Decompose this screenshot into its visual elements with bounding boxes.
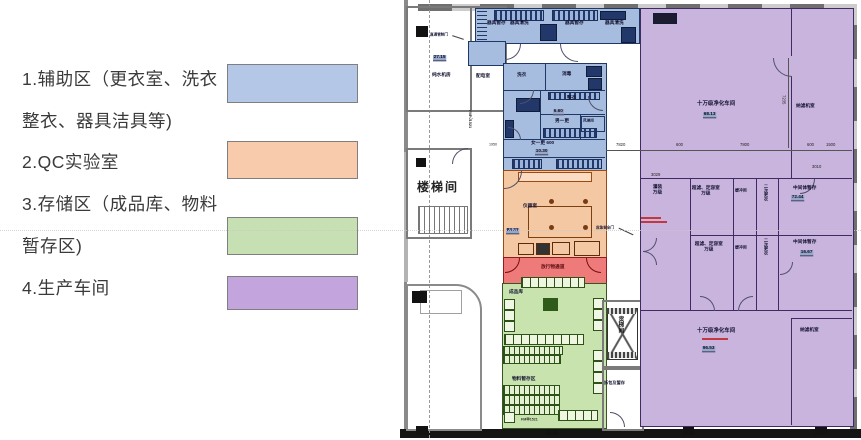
wall <box>791 76 792 178</box>
room-label-laundry: 洗衣 <box>517 73 526 79</box>
lab-table <box>528 206 592 238</box>
room-label-air-shower: 风淋间 <box>583 119 594 123</box>
room-label-elevator: 货梯间 <box>616 316 623 333</box>
micro-annotation <box>641 221 667 223</box>
wall <box>545 63 546 90</box>
dim-3029: 3029 <box>651 173 660 177</box>
area-number: 16.67 <box>800 250 813 256</box>
legend-item-1-line2: 整衣、器具洁具等) <box>22 108 172 133</box>
room-label-finished-goods: 成品库 <box>509 290 523 296</box>
legend-item-4-line1: 4.生产车间 <box>22 275 110 300</box>
dim-7820: 7820 <box>616 143 625 147</box>
room-label-second-change-1: 二次更衣 <box>762 184 767 201</box>
wall <box>791 318 792 425</box>
dim-600: 600 <box>807 143 814 147</box>
room-label-tool-wash: 器具清洗 <box>605 21 624 27</box>
room-label-disinfect: 消毒 <box>562 72 571 78</box>
area-number: 10.30 <box>535 149 548 155</box>
legend-item-3-line2: 暂存区) <box>22 233 82 258</box>
room-label-women-change: 女一更 600 <box>531 141 554 147</box>
wall <box>503 157 605 158</box>
floorplan-page: 1.辅助区（更衣室、洗衣 整衣、器具洁具等) 2.QC实验室 3.存储区（成品库… <box>0 0 861 440</box>
door-label-fm1521: FM甲1521 <box>521 418 538 422</box>
pallet <box>504 321 515 332</box>
dim-1950: 1950 <box>489 143 497 147</box>
equipment-bench <box>552 10 598 21</box>
room-label-cleanroom-bottom: 十万级净化车间 <box>697 328 735 335</box>
room-label-power: 配电室 <box>476 74 490 80</box>
leader-line <box>619 228 634 236</box>
shelf <box>503 395 560 405</box>
shelf <box>503 385 560 395</box>
zone-aux-wing <box>468 41 506 66</box>
column <box>416 158 426 167</box>
pallet <box>504 299 515 310</box>
equipment <box>600 11 626 20</box>
dim-7800: 7800 <box>740 143 749 147</box>
legend-swatch-aux <box>227 64 358 103</box>
wall <box>733 178 734 310</box>
dim-600: 600 <box>676 143 683 147</box>
pallet-row <box>558 410 598 421</box>
corridor-label-release: 放行物通道 <box>541 265 564 271</box>
room-label-intermediate-1: 中间体暂存 <box>793 186 816 192</box>
zone-production <box>640 8 854 427</box>
area-number: 68.13 <box>703 112 716 118</box>
lab-equipment <box>552 242 570 255</box>
room-label-tool-storage: 器具暂存 <box>487 21 506 27</box>
dim-1500: 1500 <box>826 143 835 147</box>
shelf <box>503 355 561 364</box>
room-label-unpack: 拆包及暂存 <box>604 381 625 386</box>
column <box>416 26 428 37</box>
room-label-buffer-2: 缓冲间 <box>735 246 747 251</box>
wall <box>778 178 779 310</box>
room-label-stairwell: 楼梯间 <box>417 178 459 195</box>
room-label-men-change: 男一更 <box>555 119 569 125</box>
room-label-filling: 灌装万级 <box>652 185 663 196</box>
lab-bench <box>518 172 592 182</box>
legend-item-1-line1: 1.辅助区（更衣室、洗衣 <box>22 66 218 91</box>
legend-swatch-production <box>227 276 358 310</box>
wall <box>503 90 605 91</box>
wall <box>640 178 852 179</box>
room-label-tool-wash: 器具清洗 <box>510 21 529 27</box>
area-number: 83.22 <box>506 228 519 234</box>
equipment <box>588 78 602 90</box>
room-label-cleanroom-top: 十万级净化车间 <box>697 101 735 108</box>
equipment-bench <box>494 10 544 21</box>
area-number: 72.44 <box>791 195 804 201</box>
shelf <box>503 346 563 355</box>
area-number: 27.15 <box>433 55 446 61</box>
lockers <box>556 159 602 169</box>
area-number: 6.60 <box>553 109 564 115</box>
room-label-access-door: 直通管制门 <box>430 33 448 37</box>
lab-equipment <box>518 243 534 255</box>
chair <box>549 199 554 204</box>
wall <box>690 235 852 236</box>
wall <box>756 178 757 310</box>
legend-item-2-line1: 2.QC实验室 <box>22 149 119 174</box>
door-arc <box>560 44 578 62</box>
pallet-row <box>504 334 584 345</box>
elevator-rail <box>607 352 636 358</box>
washer-unit <box>621 27 636 43</box>
legend-swatch-storage <box>227 217 358 255</box>
wall <box>690 178 691 310</box>
lockers <box>512 159 542 169</box>
room-label-ultrafilter-1: 超滤、定容室万级 <box>691 186 721 197</box>
legend-swatch-qc <box>227 141 358 179</box>
column <box>412 291 427 303</box>
room-label-second-change-2: 二次更衣 <box>762 238 767 255</box>
room-label-nanofilter-top: 纳滤机室 <box>796 104 815 110</box>
lab-equipment <box>574 241 600 256</box>
pallet <box>504 310 515 321</box>
micro-annotation <box>702 338 728 340</box>
washer-unit <box>540 24 557 41</box>
pallet <box>504 412 515 423</box>
area-number: 96.53 <box>702 346 715 352</box>
page-divider-line <box>0 230 861 231</box>
pallet-row <box>521 277 585 288</box>
room-label-material-staging: 物料暂存区 <box>512 377 535 383</box>
micro-annotation <box>641 217 661 219</box>
room-label-intermediate-2: 中间体暂存 <box>793 240 816 246</box>
equipment <box>653 13 677 24</box>
equipment <box>586 66 602 77</box>
wall <box>791 318 852 319</box>
room-label-instrument: 仪器室 <box>523 204 537 210</box>
room-label-ultrafilter-2: 超滤、定容室万级 <box>694 242 724 253</box>
column <box>416 426 428 435</box>
lab-equipment <box>536 243 550 255</box>
door-arc <box>505 44 521 60</box>
room-label-tool-storage: 器具暂存 <box>565 21 584 27</box>
door-label-fm1521: FM乙1521 <box>467 110 472 128</box>
legend-item-3-line1: 3.存储区（成品库、物料 <box>22 191 218 216</box>
room-label-water-room: 纯水机房 <box>432 73 451 79</box>
pallet <box>543 298 558 311</box>
dimension-line <box>788 58 789 148</box>
wall <box>540 90 541 140</box>
room-label-garment: 整衣 <box>567 96 576 102</box>
dimension-line <box>606 150 852 151</box>
elevator-rail <box>607 308 636 314</box>
dim-3010: 3010 <box>812 165 821 169</box>
dim-7235: 7235 <box>781 95 785 104</box>
room-label-nanofilter-bottom: 纳滤机室 <box>800 328 819 334</box>
wall <box>791 8 792 56</box>
room-label-buffer-1: 缓冲间 <box>735 189 747 194</box>
equipment-rack <box>477 9 487 40</box>
wall <box>540 114 605 115</box>
chair <box>583 199 588 204</box>
